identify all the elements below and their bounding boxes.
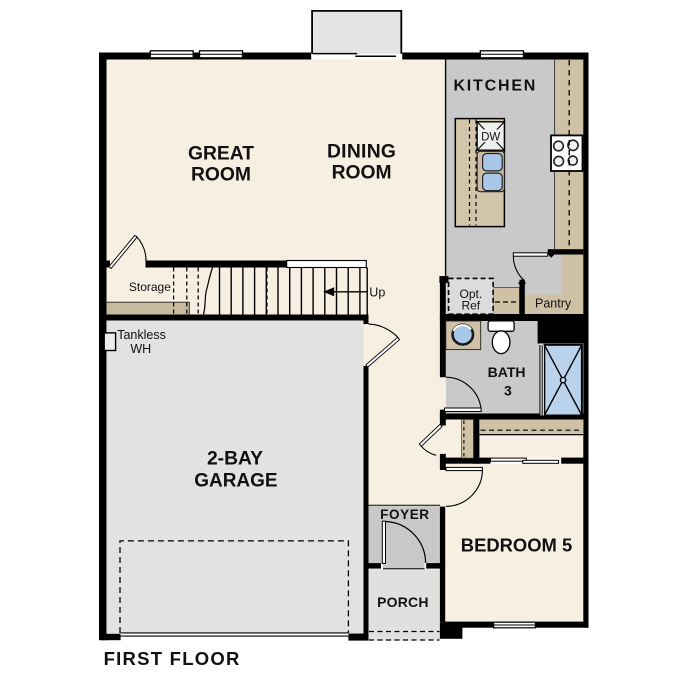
svg-text:ROOM: ROOM xyxy=(191,164,251,185)
svg-text:GREAT: GREAT xyxy=(188,144,254,165)
svg-text:DINING: DINING xyxy=(327,141,396,162)
svg-text:GARAGE: GARAGE xyxy=(194,471,277,492)
svg-text:Storage: Storage xyxy=(129,280,171,294)
svg-text:ROOM: ROOM xyxy=(332,162,392,183)
svg-text:FIRST FLOOR: FIRST FLOOR xyxy=(104,648,241,669)
svg-text:KITCHEN: KITCHEN xyxy=(453,78,537,95)
svg-text:BEDROOM 5: BEDROOM 5 xyxy=(461,534,572,555)
svg-text:BATH: BATH xyxy=(488,364,526,380)
svg-text:Ref: Ref xyxy=(461,299,480,313)
svg-text:2-BAY: 2-BAY xyxy=(207,449,263,470)
svg-text:Pantry: Pantry xyxy=(535,296,572,310)
svg-text:3: 3 xyxy=(504,382,512,398)
svg-text:Up: Up xyxy=(369,285,385,299)
svg-text:PORCH: PORCH xyxy=(377,594,429,610)
svg-text:FOYER: FOYER xyxy=(380,507,430,522)
svg-text:WH: WH xyxy=(130,342,151,356)
svg-text:DW: DW xyxy=(481,131,500,143)
svg-text:Tankless: Tankless xyxy=(117,328,166,342)
